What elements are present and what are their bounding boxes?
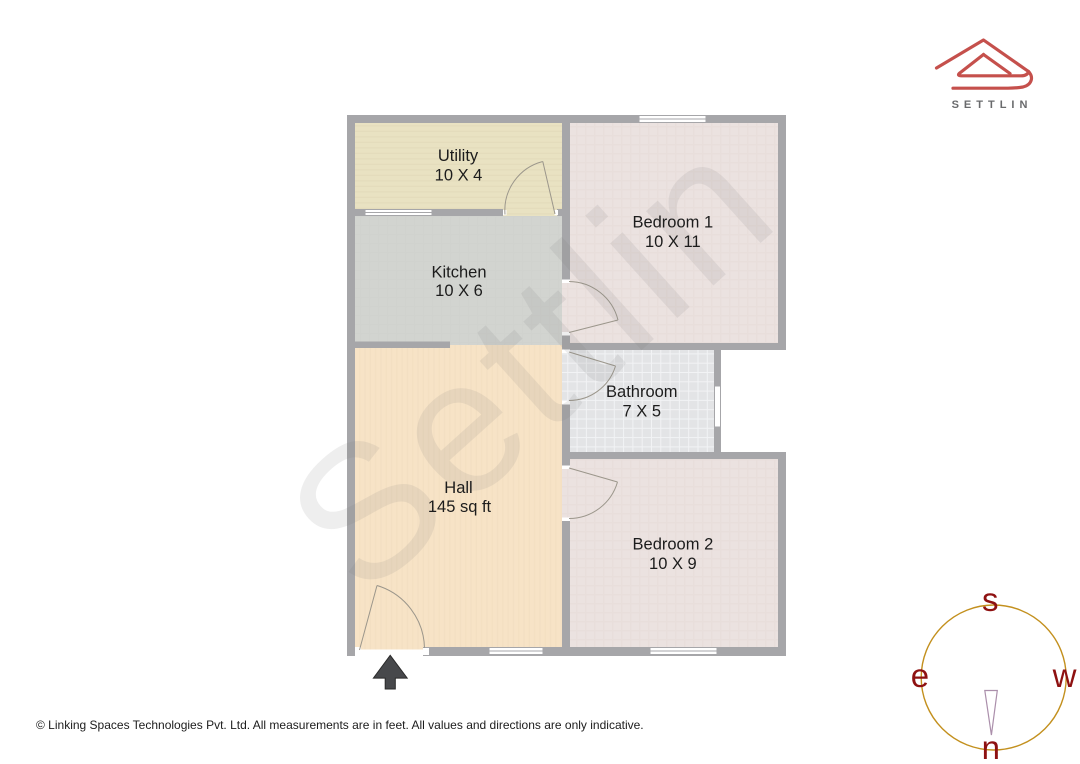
svg-text:w: w bbox=[1052, 657, 1077, 694]
svg-text:10 X 4: 10 X 4 bbox=[435, 167, 483, 185]
svg-text:10 X 6: 10 X 6 bbox=[435, 282, 483, 300]
svg-text:10 X 9: 10 X 9 bbox=[649, 555, 697, 573]
svg-text:Kitchen: Kitchen bbox=[431, 264, 486, 282]
svg-text:SETTLIN: SETTLIN bbox=[952, 99, 1033, 111]
svg-text:Bathroom: Bathroom bbox=[606, 383, 678, 401]
svg-text:145 sq ft: 145 sq ft bbox=[428, 498, 492, 516]
svg-text:10 X 11: 10 X 11 bbox=[645, 233, 701, 251]
svg-text:7 X 5: 7 X 5 bbox=[623, 403, 662, 421]
svg-text:Bedroom 2: Bedroom 2 bbox=[633, 536, 714, 554]
svg-text:Bedroom 1: Bedroom 1 bbox=[632, 214, 713, 232]
svg-text:e: e bbox=[911, 657, 929, 694]
svg-text:© Linking Spaces Technologies: © Linking Spaces Technologies Pvt. Ltd. … bbox=[36, 718, 644, 732]
svg-text:Hall: Hall bbox=[444, 479, 472, 497]
svg-text:s: s bbox=[982, 581, 999, 618]
svg-text:Utility: Utility bbox=[438, 147, 479, 165]
